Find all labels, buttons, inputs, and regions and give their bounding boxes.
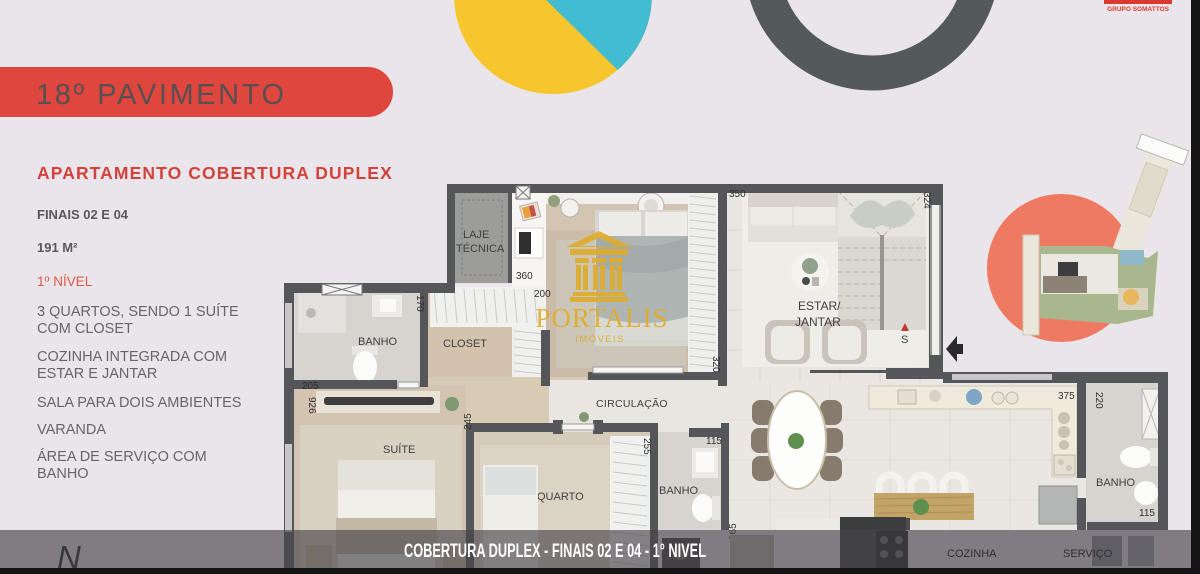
svg-text:115: 115 bbox=[706, 436, 722, 447]
svg-text:115: 115 bbox=[1139, 508, 1155, 519]
svg-text:255: 255 bbox=[641, 438, 652, 455]
svg-text:324: 324 bbox=[921, 192, 932, 209]
svg-text:CIRCULAÇÃO: CIRCULAÇÃO bbox=[596, 397, 668, 410]
svg-text:SERVIÇO: SERVIÇO bbox=[1063, 548, 1113, 560]
svg-text:1º NÍVEL: 1º NÍVEL bbox=[37, 274, 93, 289]
svg-text:ESTAR E JANTAR: ESTAR E JANTAR bbox=[37, 366, 157, 382]
svg-text:COZINHA: COZINHA bbox=[947, 548, 997, 560]
svg-text:360: 360 bbox=[516, 271, 533, 282]
svg-text:APARTAMENTO COBERTURA DUPLEX: APARTAMENTO COBERTURA DUPLEX bbox=[37, 163, 393, 183]
svg-text:COZINHA INTEGRADA COM: COZINHA INTEGRADA COM bbox=[37, 349, 227, 365]
svg-text:QUARTO: QUARTO bbox=[537, 491, 584, 503]
svg-text:FINAIS 02 E 04: FINAIS 02 E 04 bbox=[37, 207, 129, 222]
svg-text:205: 205 bbox=[302, 381, 319, 392]
svg-text:375: 375 bbox=[1058, 391, 1075, 402]
svg-text:3 QUARTOS, SENDO 1 SUÍTE: 3 QUARTOS, SENDO 1 SUÍTE bbox=[37, 303, 239, 320]
svg-text:ESTAR/: ESTAR/ bbox=[798, 299, 841, 313]
svg-text:S: S bbox=[901, 334, 908, 346]
svg-text:COBERTURA DUPLEX - FINAIS 02 E: COBERTURA DUPLEX - FINAIS 02 E 04 - 1° N… bbox=[404, 541, 706, 562]
svg-text:191 M²: 191 M² bbox=[37, 240, 78, 255]
svg-text:COM CLOSET: COM CLOSET bbox=[37, 321, 133, 337]
svg-text:BANHO: BANHO bbox=[1096, 477, 1136, 489]
svg-text:LAJE: LAJE bbox=[463, 229, 489, 241]
svg-text:SALA PARA DOIS AMBIENTES: SALA PARA DOIS AMBIENTES bbox=[37, 395, 241, 411]
svg-text:ÁREA DE SERVIÇO COM: ÁREA DE SERVIÇO COM bbox=[37, 448, 207, 465]
svg-text:BANHO: BANHO bbox=[37, 466, 89, 482]
svg-text:245: 245 bbox=[463, 413, 474, 430]
svg-text:220: 220 bbox=[1093, 392, 1104, 409]
svg-text:GRUPO SOMATTOS: GRUPO SOMATTOS bbox=[1107, 6, 1170, 13]
svg-text:SUÍTE: SUÍTE bbox=[383, 443, 415, 456]
svg-text:350: 350 bbox=[729, 189, 746, 200]
svg-text:320: 320 bbox=[710, 356, 721, 373]
svg-text:200: 200 bbox=[534, 289, 551, 300]
svg-text:TÉCNICA: TÉCNICA bbox=[456, 242, 505, 255]
svg-text:926: 926 bbox=[306, 397, 317, 414]
svg-text:PORTALIS: PORTALIS bbox=[535, 303, 668, 333]
svg-text:VARANDA: VARANDA bbox=[37, 422, 106, 438]
svg-text:BANHO: BANHO bbox=[659, 485, 699, 497]
svg-text:18º PAVIMENTO: 18º PAVIMENTO bbox=[36, 79, 287, 111]
svg-text:JANTAR: JANTAR bbox=[795, 315, 841, 329]
svg-text:CLOSET: CLOSET bbox=[443, 338, 487, 350]
svg-text:IMÓVEIS: IMÓVEIS bbox=[575, 334, 624, 345]
svg-text:170: 170 bbox=[414, 295, 425, 312]
